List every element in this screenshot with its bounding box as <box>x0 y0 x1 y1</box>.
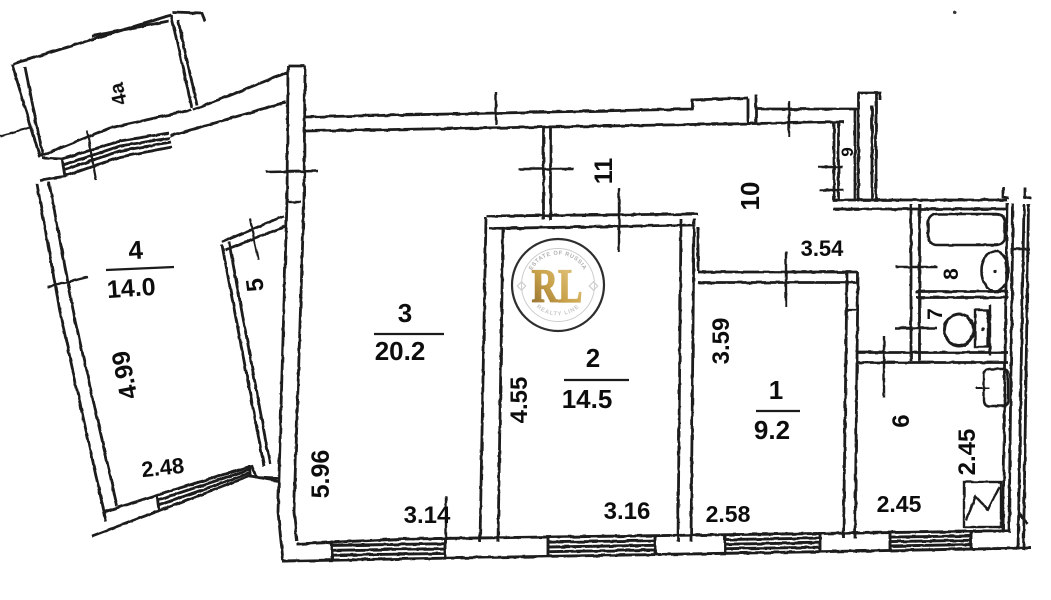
svg-text:2.45: 2.45 <box>954 429 981 476</box>
svg-text:3.54: 3.54 <box>801 236 845 261</box>
svg-text:10: 10 <box>735 182 765 211</box>
svg-text:11: 11 <box>590 158 618 185</box>
svg-text:9: 9 <box>838 147 857 156</box>
svg-text:2: 2 <box>586 343 600 373</box>
svg-text:7: 7 <box>924 308 947 320</box>
svg-text:14.5: 14.5 <box>562 384 613 414</box>
svg-text:20.2: 20.2 <box>375 336 426 366</box>
svg-text:4.55: 4.55 <box>506 377 533 424</box>
svg-text:3: 3 <box>398 298 412 328</box>
svg-text:4: 4 <box>127 235 144 266</box>
svg-text:14.0: 14.0 <box>106 273 157 304</box>
svg-text:6: 6 <box>888 414 915 427</box>
svg-text:3.14: 3.14 <box>404 502 451 529</box>
svg-text:3.59: 3.59 <box>708 318 735 365</box>
svg-text:8: 8 <box>940 268 963 280</box>
svg-text:2.45: 2.45 <box>877 491 922 517</box>
svg-text:1: 1 <box>769 375 783 405</box>
svg-text:5.96: 5.96 <box>307 450 335 499</box>
svg-text:2.48: 2.48 <box>140 453 185 482</box>
svg-text:2.58: 2.58 <box>706 501 751 527</box>
svg-text:9.2: 9.2 <box>754 415 790 445</box>
svg-text:3.16: 3.16 <box>604 498 651 525</box>
